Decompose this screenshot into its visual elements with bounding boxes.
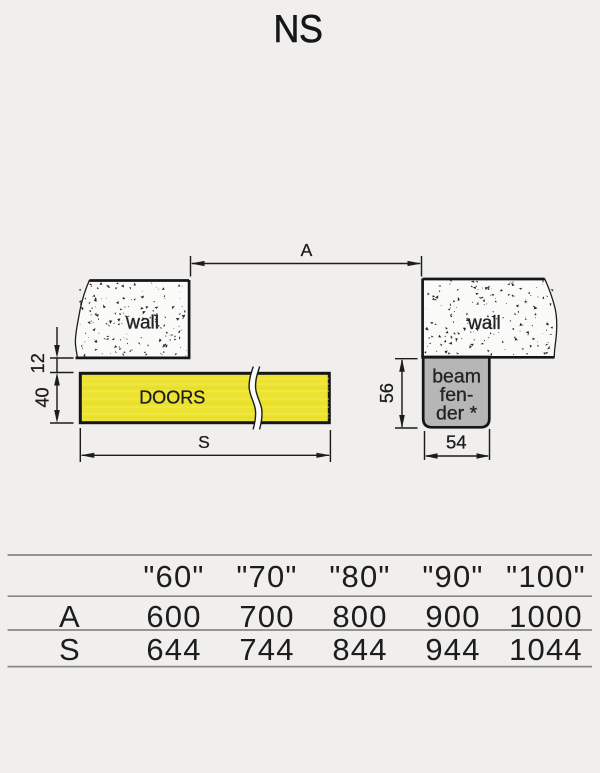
- svg-text:56: 56: [377, 383, 397, 403]
- svg-text:wall: wall: [467, 313, 501, 334]
- svg-text:wall: wall: [125, 313, 159, 334]
- svg-text:DOORS: DOORS: [139, 388, 205, 408]
- svg-text:S: S: [198, 432, 210, 452]
- svg-text:der *: der *: [436, 403, 478, 425]
- svg-text:12: 12: [28, 353, 48, 373]
- svg-text:40: 40: [33, 387, 53, 407]
- svg-text:54: 54: [446, 432, 467, 453]
- svg-text:A: A: [301, 240, 313, 260]
